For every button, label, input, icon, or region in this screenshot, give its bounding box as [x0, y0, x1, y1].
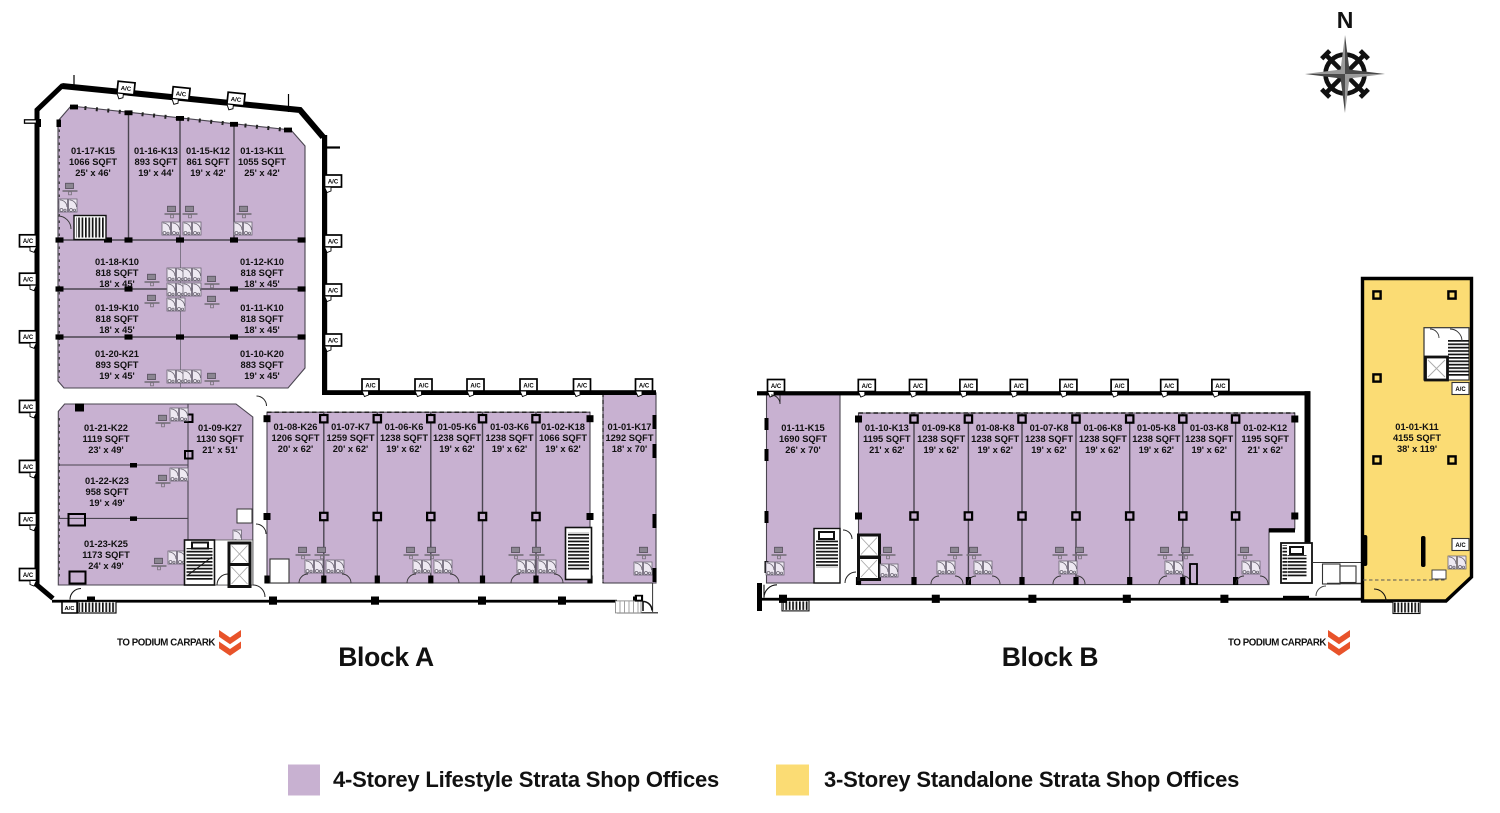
- svg-text:01-21-K221119 SQFT23' x 49': 01-21-K221119 SQFT23' x 49': [82, 423, 129, 455]
- svg-text:01-19-K10818 SQFT18' x 45': 01-19-K10818 SQFT18' x 45': [95, 303, 139, 335]
- svg-text:01-07-K81238 SQFT19' x 62': 01-07-K81238 SQFT19' x 62': [1025, 423, 1073, 455]
- svg-text:01-11-K151690 SQFT26' x 70': 01-11-K151690 SQFT26' x 70': [779, 423, 827, 455]
- svg-text:N: N: [1337, 7, 1354, 33]
- svg-text:01-08-K81238 SQFT19' x 62': 01-08-K81238 SQFT19' x 62': [971, 423, 1019, 455]
- svg-text:01-03-K61238 SQFT19' x 62': 01-03-K61238 SQFT19' x 62': [485, 422, 533, 454]
- svg-text:01-09-K81238 SQFT19' x 62': 01-09-K81238 SQFT19' x 62': [917, 423, 965, 455]
- svg-text:01-08-K261206 SQFT20' x 62': 01-08-K261206 SQFT20' x 62': [271, 422, 319, 454]
- svg-text:01-17-K151066 SQFT25' x 46': 01-17-K151066 SQFT25' x 46': [69, 146, 117, 178]
- svg-text:A/C: A/C: [1455, 543, 1466, 549]
- svg-text:Block A: Block A: [338, 642, 434, 672]
- svg-text:01-20-K21893 SQFT19' x 45': 01-20-K21893 SQFT19' x 45': [95, 349, 139, 381]
- svg-text:01-05-K61238 SQFT19' x 62': 01-05-K61238 SQFT19' x 62': [433, 422, 481, 454]
- svg-text:01-03-K81238 SQFT19' x 62': 01-03-K81238 SQFT19' x 62': [1185, 423, 1233, 455]
- svg-text:TO PODIUM CARPARK: TO PODIUM CARPARK: [117, 638, 215, 649]
- svg-text:01-22-K23958 SQFT19' x 49': 01-22-K23958 SQFT19' x 49': [85, 476, 129, 508]
- svg-text:4-Storey Lifestyle Strata Shop: 4-Storey Lifestyle Strata Shop Offices: [333, 767, 719, 792]
- svg-text:01-09-K271130 SQFT21' x 51': 01-09-K271130 SQFT21' x 51': [196, 423, 244, 455]
- svg-text:01-07-K71259 SQFT20' x 62': 01-07-K71259 SQFT20' x 62': [326, 422, 374, 454]
- svg-text:01-02-K121195 SQFT21' x 62': 01-02-K121195 SQFT21' x 62': [1241, 423, 1289, 455]
- svg-text:01-18-K10818 SQFT18' x 45': 01-18-K10818 SQFT18' x 45': [95, 257, 139, 289]
- svg-text:01-11-K10818 SQFT18' x 45': 01-11-K10818 SQFT18' x 45': [240, 303, 283, 335]
- svg-text:01-06-K61238 SQFT19' x 62': 01-06-K61238 SQFT19' x 62': [380, 422, 428, 454]
- svg-text:01-12-K10818 SQFT18' x 45': 01-12-K10818 SQFT18' x 45': [240, 257, 284, 289]
- svg-text:01-13-K111055 SQFT25' x 42': 01-13-K111055 SQFT25' x 42': [238, 146, 286, 178]
- svg-text:01-10-K131195 SQFT21' x 62': 01-10-K131195 SQFT21' x 62': [863, 423, 911, 455]
- svg-text:01-01-K114155 SQFT38' x 119': 01-01-K114155 SQFT38' x 119': [1393, 422, 1441, 454]
- svg-text:01-23-K251173 SQFT24' x 49': 01-23-K251173 SQFT24' x 49': [82, 539, 130, 571]
- svg-text:01-01-K171292 SQFT18' x 70': 01-01-K171292 SQFT18' x 70': [605, 422, 653, 454]
- svg-text:01-02-K181066 SQFT19' x 62': 01-02-K181066 SQFT19' x 62': [539, 422, 587, 454]
- svg-text:A/C: A/C: [65, 606, 76, 612]
- svg-text:Block B: Block B: [1002, 642, 1099, 672]
- svg-text:01-10-K20883 SQFT19' x 45': 01-10-K20883 SQFT19' x 45': [240, 349, 284, 381]
- svg-text:01-16-K13893 SQFT19' x 44': 01-16-K13893 SQFT19' x 44': [134, 146, 178, 178]
- svg-text:01-15-K12861 SQFT19' x 42': 01-15-K12861 SQFT19' x 42': [186, 146, 230, 178]
- svg-text:01-06-K81238 SQFT19' x 62': 01-06-K81238 SQFT19' x 62': [1079, 423, 1127, 455]
- svg-text:3-Storey Standalone Strata Sho: 3-Storey Standalone Strata Shop Offices: [824, 767, 1239, 792]
- svg-text:TO PODIUM CARPARK: TO PODIUM CARPARK: [1228, 638, 1326, 649]
- svg-text:01-05-K81238 SQFT19' x 62': 01-05-K81238 SQFT19' x 62': [1132, 423, 1180, 455]
- svg-text:A/C: A/C: [1455, 387, 1466, 393]
